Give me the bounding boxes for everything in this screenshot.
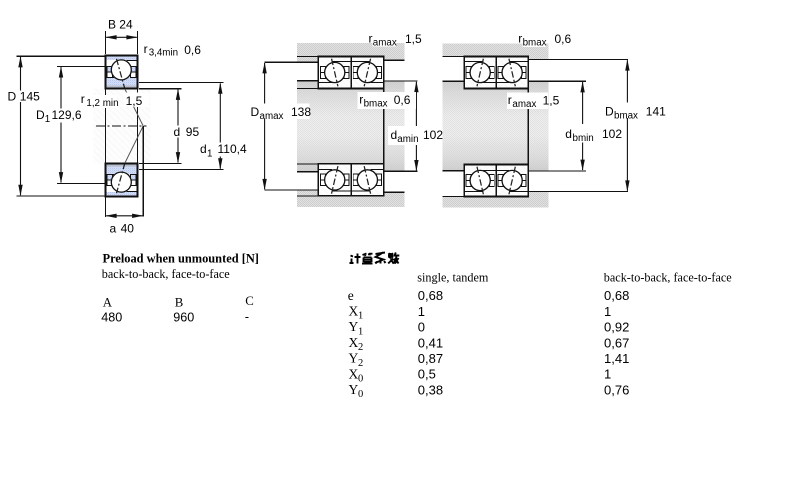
svg-text:1: 1: [418, 304, 425, 319]
svg-text:e: e: [348, 288, 354, 303]
svg-text:back-to-back, face-to-face: back-to-back, face-to-face: [102, 267, 230, 281]
svg-text:B24: B24: [108, 18, 133, 32]
svg-text:1,5: 1,5: [126, 94, 143, 108]
svg-text:C: C: [245, 294, 254, 308]
svg-text:0,76: 0,76: [604, 382, 629, 397]
svg-text:0,68: 0,68: [604, 288, 629, 303]
svg-text:1: 1: [604, 304, 611, 319]
svg-text:a40: a40: [110, 221, 135, 235]
svg-text:-: -: [245, 309, 249, 324]
svg-text:A: A: [103, 296, 113, 310]
svg-text:d95: d95: [174, 125, 200, 139]
svg-text:0: 0: [418, 320, 425, 335]
svg-text:960: 960: [173, 311, 194, 325]
svg-text:0,67: 0,67: [604, 335, 629, 350]
svg-text:Preload when unmounted [N]: Preload when unmounted [N]: [103, 252, 259, 266]
svg-text:0,5: 0,5: [418, 367, 436, 382]
svg-text:back-to-back, face-to-face: back-to-back, face-to-face: [604, 271, 732, 285]
svg-text:1,41: 1,41: [604, 351, 629, 366]
svg-text:single, tandem: single, tandem: [417, 271, 489, 285]
svg-text:0,41: 0,41: [418, 335, 443, 350]
svg-text:0,68: 0,68: [418, 288, 443, 303]
svg-text:0,87: 0,87: [418, 351, 443, 366]
svg-text:B: B: [175, 296, 184, 310]
svg-text:1: 1: [604, 367, 611, 382]
svg-text:0,92: 0,92: [604, 320, 629, 335]
svg-text:D145: D145: [8, 89, 41, 103]
svg-text:480: 480: [101, 311, 122, 325]
svg-text:0,38: 0,38: [418, 382, 443, 397]
